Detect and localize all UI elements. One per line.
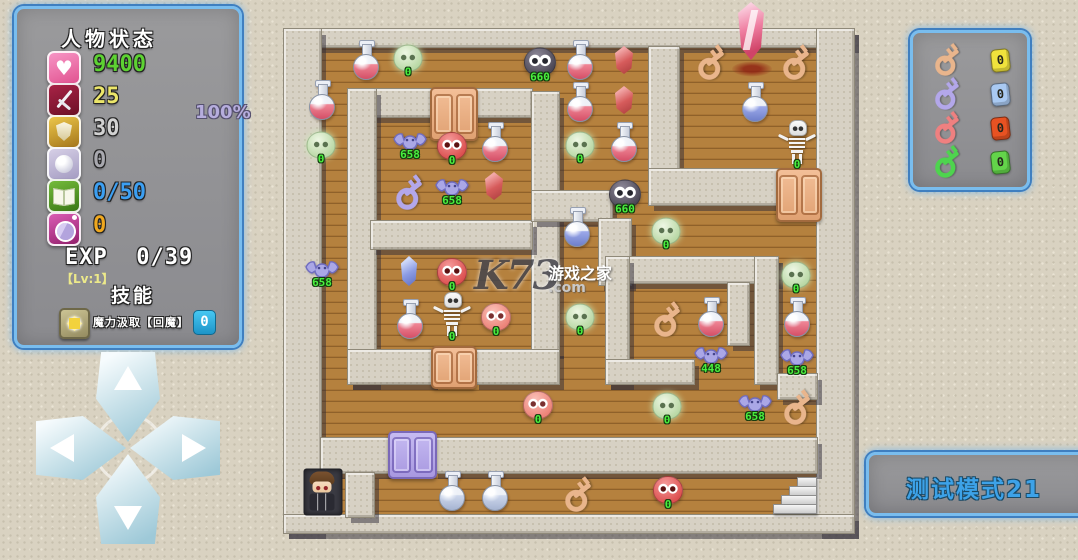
hp-label: 0 — [665, 498, 672, 511]
red-monster: 0 — [437, 132, 467, 160]
hp-label: 660 — [530, 71, 550, 84]
silver-potion — [439, 471, 465, 511]
red-potion — [397, 299, 423, 339]
blue-key-count: 0 — [990, 82, 1011, 107]
orange-key — [778, 50, 812, 71]
hp-label: 0 — [663, 239, 670, 252]
hp-label: 0 — [577, 153, 584, 166]
red-gem — [614, 86, 634, 114]
red-potion — [353, 40, 379, 80]
level-badge: 【Lv:1】 — [61, 270, 114, 287]
hp-label: 658 — [442, 194, 462, 207]
maze-wall — [432, 437, 818, 474]
red-potion — [567, 82, 593, 122]
right-arrow-icon — [182, 434, 206, 462]
stairs — [775, 478, 817, 514]
mode-label: 测试模式21 — [869, 470, 1078, 504]
dark-monster: 660 — [609, 180, 641, 209]
red-gem — [484, 172, 504, 200]
maze-wall — [727, 282, 750, 346]
hit-rate-value: 100% — [195, 102, 251, 123]
maze-board: 06600658000658660065800000448658006580 — [283, 28, 853, 532]
maze-wall — [370, 220, 533, 250]
orange-key — [649, 307, 683, 328]
red-monster: 0 — [437, 258, 467, 286]
green-slime: 0 — [653, 393, 682, 420]
hp-label: 0 — [405, 66, 412, 79]
orange-key — [560, 482, 594, 503]
hp-label: 0 — [493, 325, 500, 338]
key-row-orange-key: 0 — [929, 47, 1019, 77]
hp-label: 658 — [312, 276, 332, 289]
purple-bat: 658 — [305, 260, 339, 282]
red-key-icon — [928, 108, 965, 142]
skeleton: 0 — [435, 292, 469, 336]
blue-gem — [400, 256, 418, 286]
red-gem — [614, 46, 634, 74]
pink-monster: 0 — [523, 391, 553, 419]
red-potion — [567, 40, 593, 80]
hp-label: 448 — [701, 362, 721, 375]
coin-icon — [47, 212, 81, 246]
up-arrow-icon — [114, 366, 142, 390]
silver-potion — [482, 471, 508, 511]
skill-count-badge: 0 — [193, 310, 216, 335]
mode-panel: 测试模式21 — [866, 452, 1078, 516]
shield-value: 30 — [93, 116, 120, 141]
maze-wall — [754, 256, 779, 385]
red-potion — [698, 297, 724, 337]
exp-line: EXP 0/39 — [65, 245, 193, 270]
orange-key-icon — [928, 40, 965, 74]
status-panel-title: 人物状态 — [61, 23, 157, 52]
red-potion — [611, 122, 637, 162]
green-slime: 0 — [307, 132, 336, 159]
red-monster: 0 — [653, 476, 683, 504]
maze-wall — [605, 256, 779, 284]
player — [304, 469, 343, 516]
purple-bat: 658 — [393, 132, 427, 154]
orange-key-count: 0 — [990, 48, 1011, 73]
hp-label: 0 — [449, 154, 456, 167]
maze-wall — [605, 359, 695, 385]
orb-icon — [47, 147, 81, 181]
attack-value: 25 — [93, 84, 120, 109]
hp-label: 0 — [449, 330, 456, 343]
exp-label: EXP — [65, 245, 108, 270]
orb-value: 0 — [93, 148, 106, 173]
status-panel: 人物状态 ♥9400253000/500 100% EXP 0/39 【Lv:1… — [14, 6, 242, 348]
green-slime: 0 — [652, 218, 681, 245]
green-slime: 0 — [394, 45, 423, 72]
maze-wall — [531, 91, 560, 354]
orange-key — [779, 395, 813, 416]
blood-stain — [732, 62, 772, 77]
down-arrow-icon — [114, 506, 142, 530]
green-key-count: 0 — [990, 150, 1011, 175]
coin-value: 0 — [93, 213, 106, 238]
red-potion — [309, 80, 335, 120]
skill-icon — [59, 308, 90, 339]
hp-label: 0 — [577, 325, 584, 338]
key-row-green-key: 0 — [929, 149, 1019, 179]
maze-wall — [347, 349, 434, 385]
pink-monster: 0 — [481, 303, 511, 331]
hp-label: 660 — [615, 203, 635, 216]
book-value: 0/50 — [93, 180, 146, 205]
green-slime: 0 — [566, 132, 595, 159]
purple-bat: 448 — [694, 346, 728, 368]
hp-label: 0 — [794, 158, 801, 171]
heart-icon: ♥ — [47, 51, 81, 85]
hp-label: 658 — [745, 410, 765, 423]
hp-label: 0 — [664, 414, 671, 427]
skeleton: 0 — [780, 120, 814, 164]
purple-key — [391, 180, 425, 201]
green-key-icon — [928, 142, 965, 176]
skill-name: 魔力汲取【回魔】 — [93, 314, 189, 330]
pink-crystal — [734, 2, 768, 60]
orange-door — [431, 346, 477, 389]
maze-wall — [816, 28, 855, 534]
hp-label: 658 — [787, 364, 807, 377]
red-potion — [482, 122, 508, 162]
purple-bat: 658 — [780, 348, 814, 370]
maze-wall — [473, 349, 560, 385]
orange-key — [693, 50, 727, 71]
skills-title: 技能 — [111, 281, 155, 308]
orange-door — [776, 168, 822, 222]
hp-label: 0 — [318, 153, 325, 166]
attack-icon — [47, 83, 81, 117]
exp-value: 0/39 — [136, 245, 193, 270]
key-row-blue-key: 0 — [929, 81, 1019, 111]
purple-bat: 658 — [435, 178, 469, 200]
blue-key-icon — [928, 74, 965, 108]
heart-value: 9400 — [93, 52, 146, 77]
green-slime: 0 — [782, 262, 811, 289]
blue-potion — [564, 207, 590, 247]
hp-label: 0 — [793, 283, 800, 296]
game-screen: { "status_panel": { "title": "人物状态", "hi… — [0, 0, 1078, 560]
purple-bat: 658 — [738, 394, 772, 416]
maze-wall — [345, 472, 375, 518]
purple-door — [388, 431, 437, 479]
key-inventory-panel: 0000 — [910, 30, 1030, 190]
key-row-red-key: 0 — [929, 115, 1019, 145]
book-icon — [47, 179, 81, 213]
green-slime: 0 — [566, 304, 595, 331]
hp-label: 658 — [400, 148, 420, 161]
shield-icon — [47, 115, 81, 149]
hp-label: 0 — [535, 413, 542, 426]
maze-wall — [648, 168, 782, 206]
red-potion — [784, 297, 810, 337]
blue-potion — [742, 82, 768, 122]
red-key-count: 0 — [990, 116, 1011, 141]
left-arrow-icon — [50, 434, 74, 462]
dark-monster: 660 — [524, 48, 556, 77]
